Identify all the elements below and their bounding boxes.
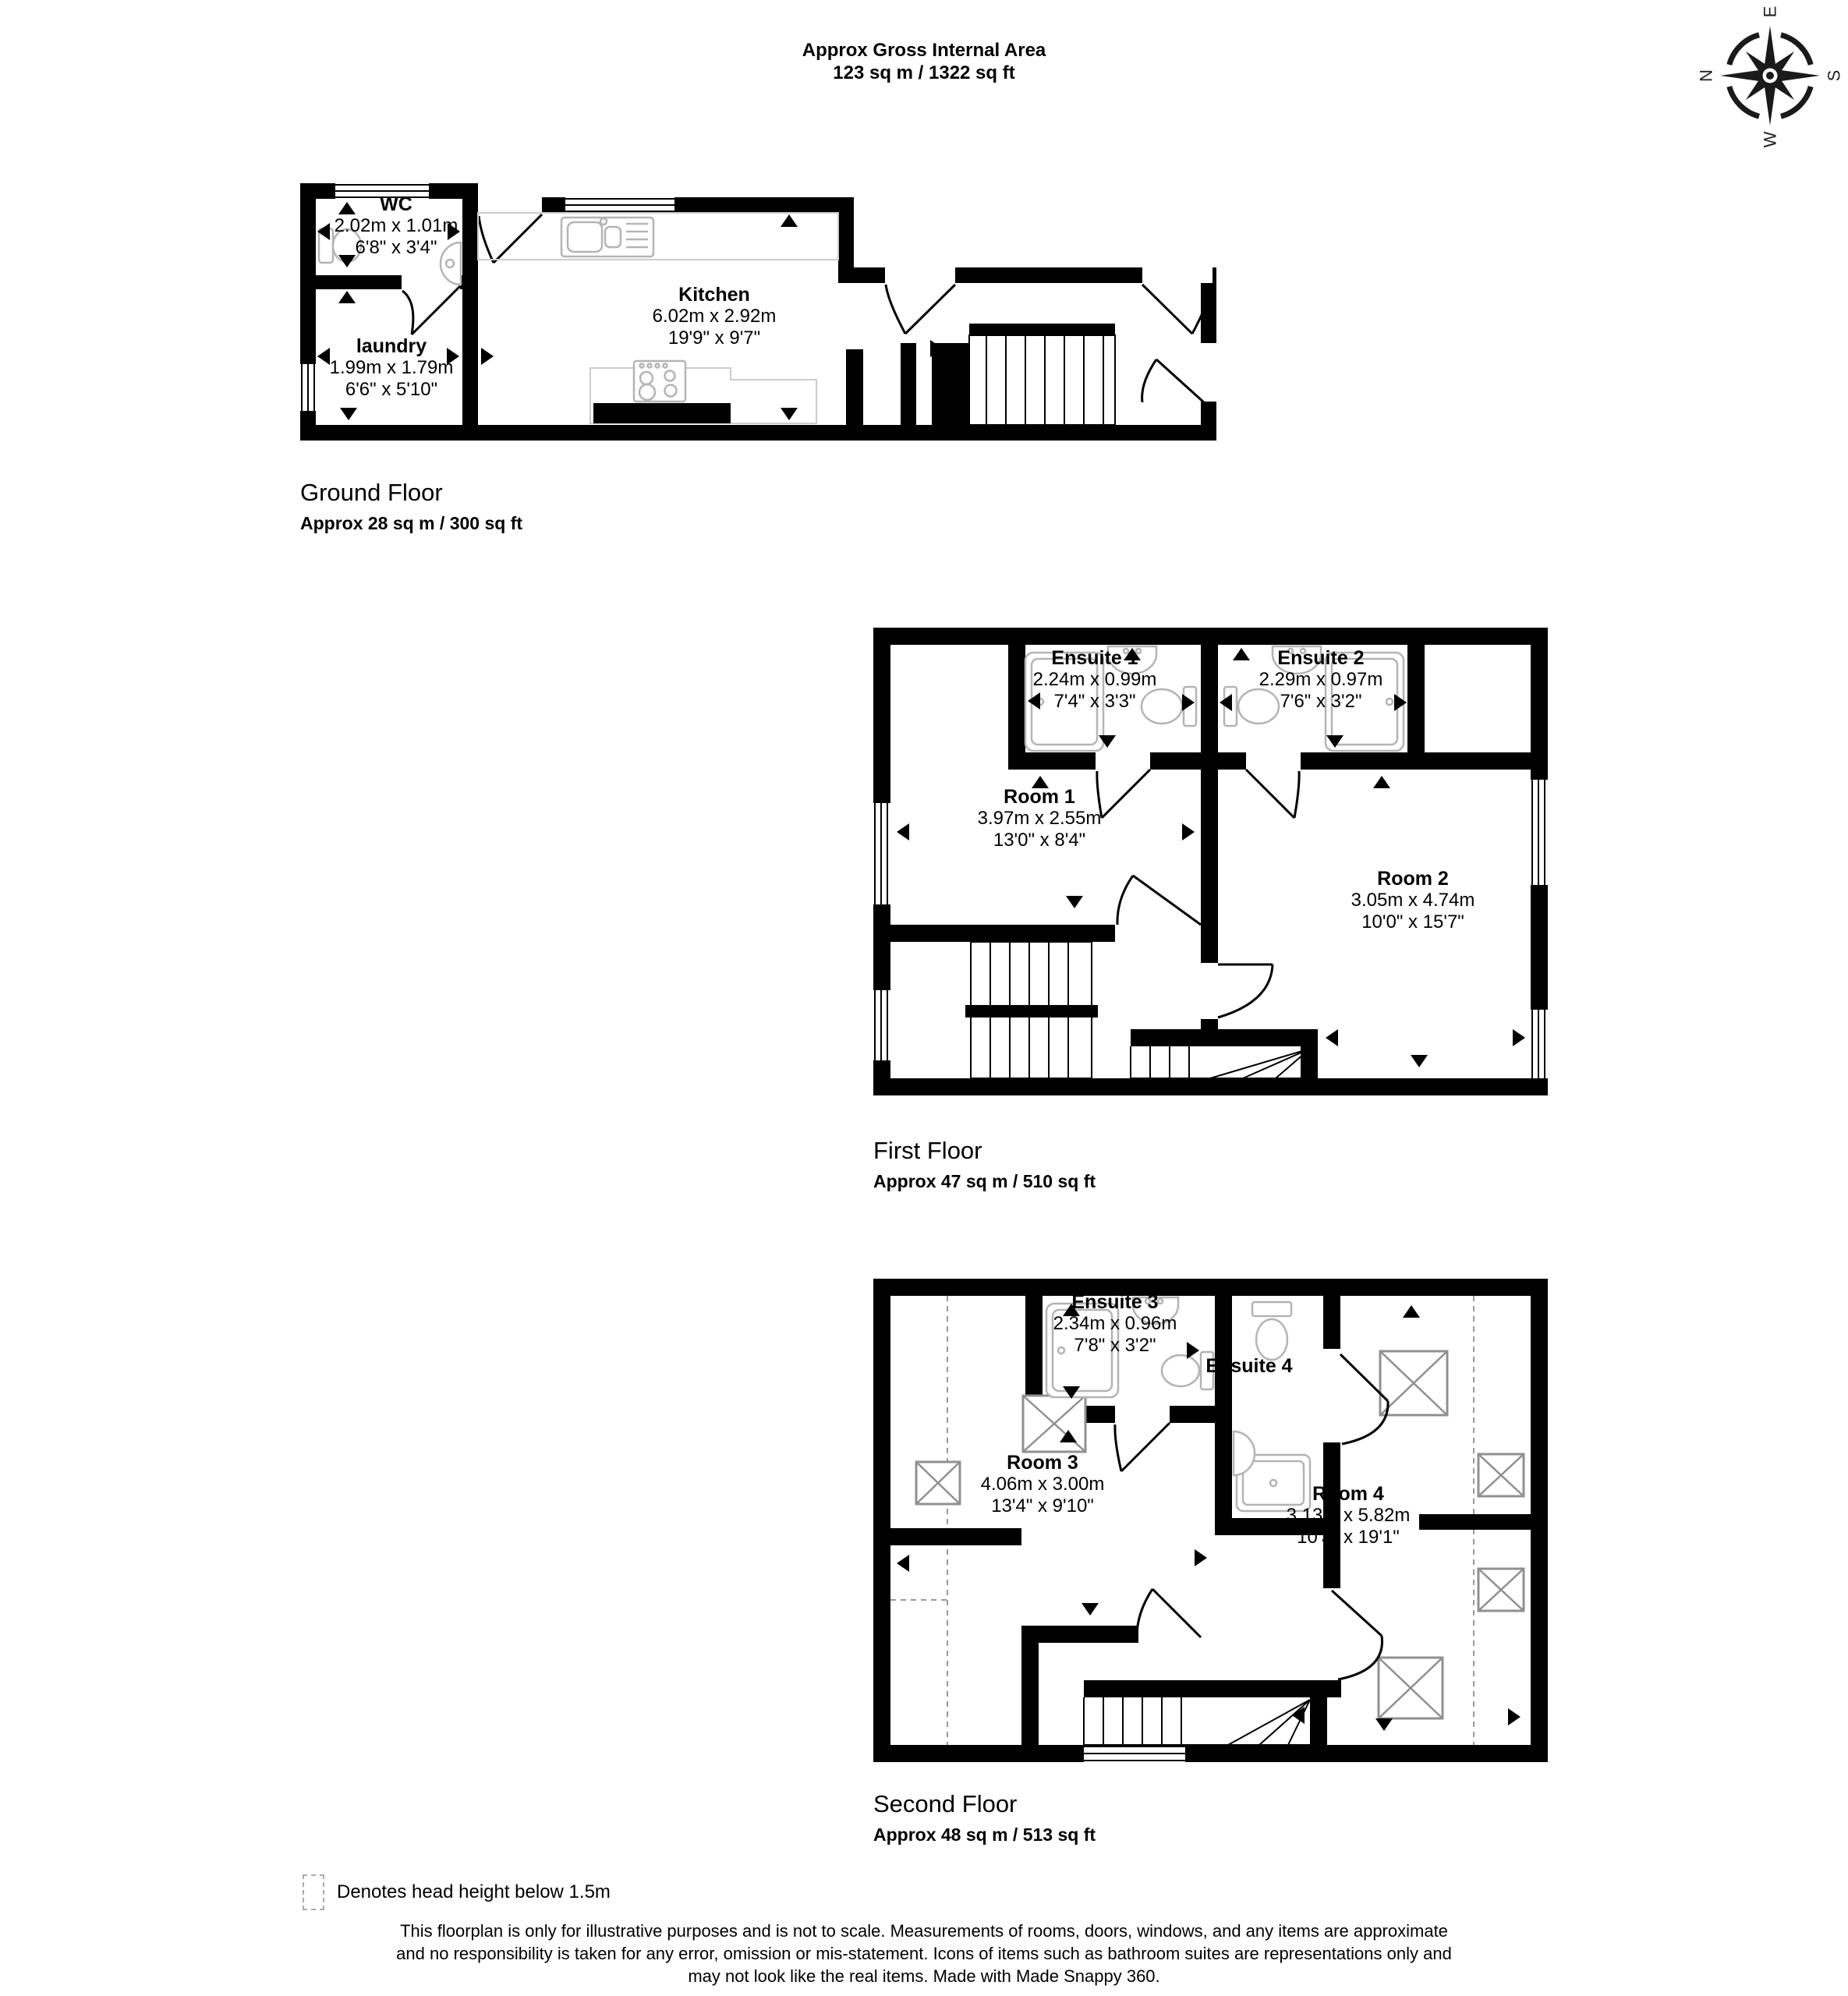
hob-icon: [634, 361, 685, 402]
disclaimer: This floorplan is only for illustrative …: [0, 1920, 1848, 1987]
compass-e: E: [1761, 6, 1780, 18]
head-height-legend: Denotes head height below 1.5m: [303, 1874, 611, 1910]
first-floor-plan: [873, 628, 1548, 1095]
room-label-ensuite1: Ensuite 1 2.24m x 0.99m 7'4" x 3'3": [1033, 647, 1157, 713]
page-title: Approx Gross Internal Area 123 sq m / 13…: [0, 39, 1848, 84]
floor-title-ground: Ground Floor Approx 28 sq m / 300 sq ft: [300, 479, 522, 534]
room-label-room3: Room 3 4.06m x 3.00m 13'4" x 9'10": [981, 1452, 1105, 1517]
compass-n: N: [1697, 69, 1716, 82]
room-label-ensuite3: Ensuite 3 2.34m x 0.96m 7'8" x 3'2": [1053, 1291, 1177, 1357]
window: [1084, 1746, 1185, 1761]
sink-icon: [561, 218, 653, 257]
door-arc: [1097, 770, 1299, 1017]
room-label-kitchen: Kitchen 6.02m x 2.92m 19'9" x 9'7": [653, 284, 777, 349]
room-label-room2: Room 2 3.05m x 4.74m 10'0" x 15'7": [1351, 868, 1475, 933]
disclaimer-line3: may not look like the real items. Made w…: [0, 1965, 1848, 1987]
room-label-ensuite2: Ensuite 2 2.29m x 0.97m 7'6" x 3'2": [1259, 647, 1383, 713]
room-label-room4: Room 4 3.13m x 5.82m 10'3" x 19'1": [1287, 1483, 1411, 1548]
door-arc: [402, 214, 1212, 403]
stairs: [969, 335, 1115, 425]
disclaimer-line1: This floorplan is only for illustrative …: [0, 1920, 1848, 1942]
walls: [873, 628, 1548, 1095]
title-line2: 123 sq m / 1322 sq ft: [0, 62, 1848, 84]
compass-rose-icon: N E S W: [1696, 2, 1844, 150]
head-height-legend-box-icon: [303, 1874, 324, 1910]
second-floor-plan: [873, 1279, 1548, 1762]
room-label-ensuite4: Ensuite 4: [1205, 1355, 1292, 1377]
compass-w: W: [1761, 131, 1780, 147]
head-height-legend-text: Denotes head height below 1.5m: [337, 1881, 611, 1903]
floor-title-first: First Floor Approx 47 sq m / 510 sq ft: [873, 1137, 1096, 1192]
floor-title-second: Second Floor Approx 48 sq m / 513 sq ft: [873, 1790, 1096, 1846]
room-label-wc: WC 2.02m x 1.01m 6'8" x 3'4": [335, 193, 458, 259]
floorplan-page: Approx Gross Internal Area 123 sq m / 13…: [0, 0, 1848, 1996]
room-label-room1: Room 1 3.97m x 2.55m 13'0" x 8'4": [978, 786, 1102, 851]
disclaimer-line2: and no responsibility is taken for any e…: [0, 1942, 1848, 1965]
room-label-laundry: laundry 1.99m x 1.79m 6'6" x 5'10": [330, 335, 454, 401]
stairs: [1084, 1697, 1310, 1745]
title-line1: Approx Gross Internal Area: [0, 39, 1848, 62]
compass-s: S: [1825, 70, 1844, 82]
